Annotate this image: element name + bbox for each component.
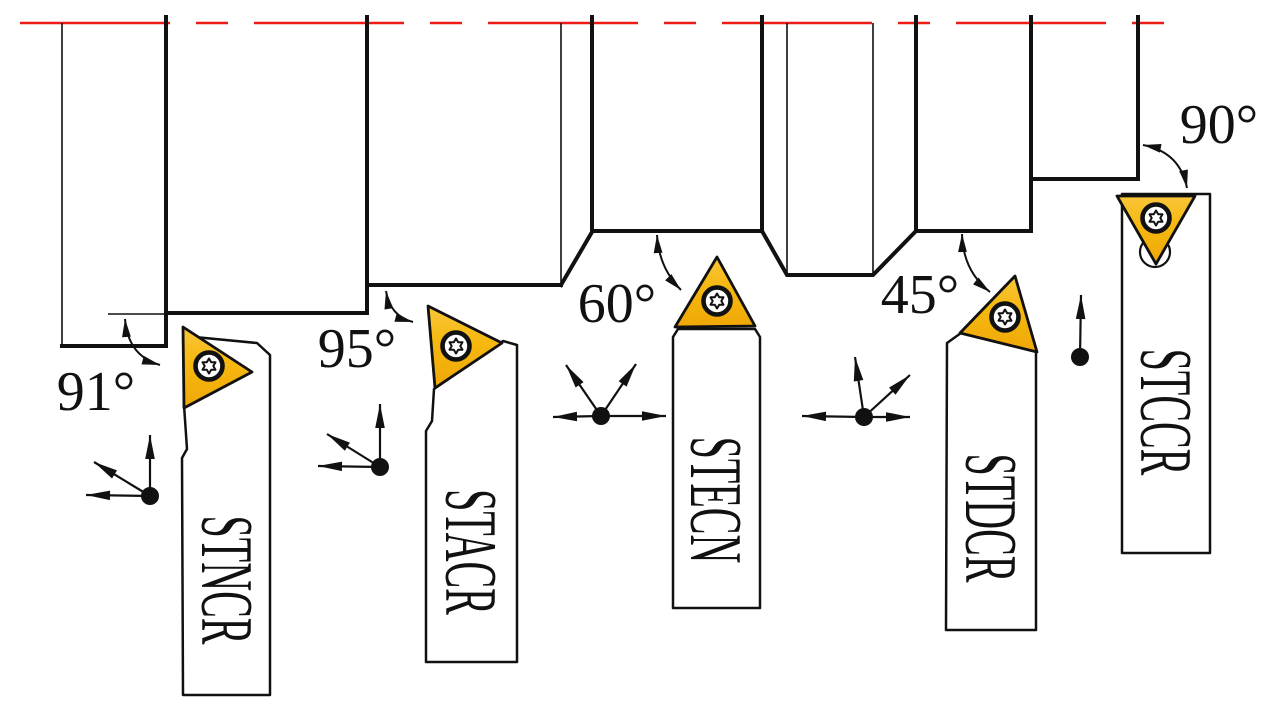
feed-directions-icon	[553, 364, 666, 425]
tool-stdcr: STDCR 45°	[802, 234, 1037, 630]
angle-label: 91°	[57, 361, 135, 423]
tool-name-label: STDCR	[950, 454, 1032, 583]
torx-screw-icon	[1143, 205, 1170, 232]
angle-label: 60°	[578, 273, 656, 335]
tool-name-label: STNCR	[186, 516, 268, 645]
tool-name-label: STACR	[430, 489, 512, 615]
feed-arrow-up-right	[864, 375, 910, 417]
angle-arc	[125, 319, 160, 365]
feed-arrow-left	[86, 495, 150, 496]
feed-arrow-up-left	[566, 365, 601, 416]
feed-arrow-up-right	[601, 364, 636, 416]
feed-directions-icon	[802, 357, 910, 426]
feed-directions-icon	[318, 404, 389, 476]
torx-screw-icon	[704, 288, 731, 315]
tool-stccr: STCCR 90°	[1071, 94, 1258, 553]
feed-arrow-up	[855, 357, 864, 417]
tool-stacr: STACR 95°	[318, 291, 517, 662]
feed-arrow-left	[553, 416, 601, 417]
angle-label: 90°	[1180, 94, 1258, 156]
tool-name-label: STCCR	[1125, 349, 1207, 476]
torx-screw-icon	[992, 304, 1019, 331]
feed-directions-icon	[1071, 295, 1089, 366]
feed-arrow-up-left	[327, 434, 380, 467]
tool-name-label: STECN	[675, 437, 757, 564]
feed-arrow-up	[1080, 295, 1081, 357]
feed-directions-icon	[86, 435, 159, 505]
angle-label: 45°	[881, 264, 959, 326]
feed-arrow-up-left	[94, 462, 150, 496]
turning-tools-diagram: STNCR 91° STACR 95° STECN	[0, 0, 1280, 719]
angle-arc	[962, 234, 990, 292]
torx-screw-icon	[443, 333, 470, 360]
diagram-canvas: STNCR 91° STACR 95° STECN	[0, 0, 1280, 719]
angle-arc	[657, 235, 681, 290]
angle-label: 95°	[318, 318, 396, 380]
feed-arrow-left	[318, 466, 380, 467]
torx-screw-icon	[196, 353, 223, 380]
feed-arrow-left	[802, 416, 864, 417]
workpiece-thin-edges	[62, 23, 873, 346]
tool-stncr: STNCR 91°	[57, 319, 270, 695]
tool-stecn: STECN 60°	[553, 235, 760, 608]
